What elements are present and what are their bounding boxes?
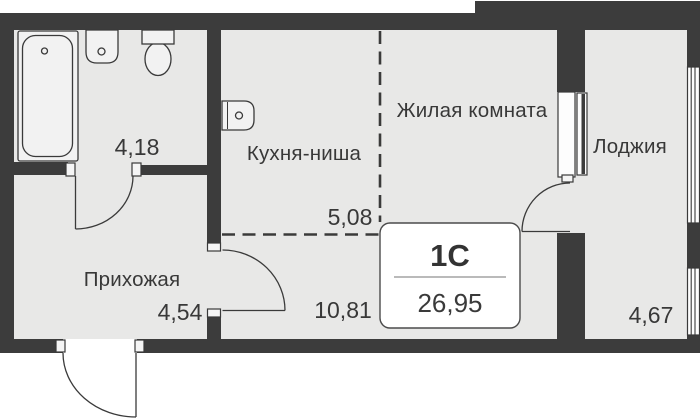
unit-total-area: 26,95 [417, 288, 482, 318]
door-jamb [66, 163, 75, 176]
entrance-door-swing-arc [63, 353, 136, 417]
unit-type-plate: 1С 26,95 [380, 223, 520, 328]
wall-bottom-b [137, 339, 700, 353]
wall-left [0, 13, 14, 353]
balcony-door-jamb [562, 175, 573, 182]
door-jamb [132, 163, 141, 176]
loggia-windows [688, 67, 700, 335]
wall-right-lower [687, 335, 700, 353]
door-jamb [208, 309, 221, 317]
window-sill-panel [558, 92, 575, 177]
area-bathroom: 4,18 [115, 134, 160, 160]
kitchen-fixtures [222, 101, 254, 130]
door-jamb [208, 243, 221, 251]
wall-bathroom-right [207, 30, 221, 243]
area-kitchen: 5,08 [328, 204, 373, 230]
wall-right-middle [687, 223, 700, 268]
wall-loggia-column-top [557, 30, 585, 92]
floor-plan: 1С 26,95 Жилая комната Кухня-ниша Прихож… [0, 0, 700, 418]
room-label-living: Жилая комната [397, 99, 548, 122]
door-jamb [56, 340, 65, 352]
entrance-door [56, 340, 144, 417]
kitchen-sink-icon [222, 101, 254, 130]
area-loggia: 4,67 [629, 302, 674, 328]
room-label-hallway: Прихожая [84, 268, 181, 291]
window-loggia-right-upper [688, 67, 700, 223]
bathtub-platform-edge [14, 162, 68, 175]
toilet-bowl-icon [145, 43, 171, 76]
wall-top-left-section [0, 13, 477, 30]
unit-type-label: 1С [430, 238, 470, 273]
room-label-loggia: Лоджия [593, 135, 667, 158]
area-hallway: 4,54 [158, 299, 203, 325]
toilet-tank-icon [142, 30, 174, 44]
wall-hallway-stub [207, 317, 221, 339]
door-jamb [135, 340, 144, 352]
wall-bathroom-bottom-b [133, 165, 221, 175]
area-living: 10,81 [314, 297, 372, 323]
room-label-kitchen: Кухня-ниша [247, 142, 362, 165]
window-glazing-bar [582, 94, 586, 174]
wall-bottom-a [0, 339, 63, 353]
sink-icon [86, 30, 118, 63]
wall-top-right-section [475, 1, 700, 30]
window-loggia-right-lower [688, 268, 700, 335]
floor-area [14, 30, 687, 339]
wall-right-upper [687, 1, 700, 67]
wall-loggia-pillar-bottom [557, 233, 585, 353]
